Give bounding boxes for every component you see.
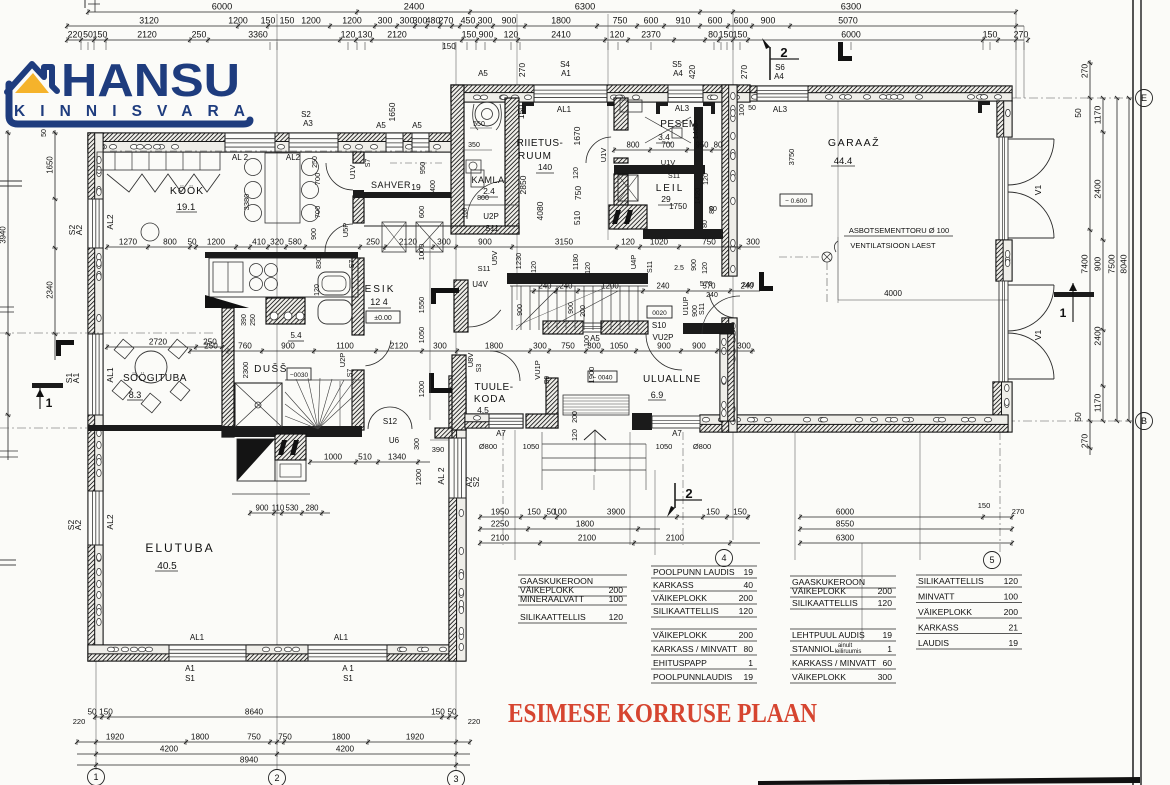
svg-text:3380: 3380 — [242, 194, 251, 211]
svg-text:6300: 6300 — [841, 2, 861, 12]
svg-text:280: 280 — [305, 504, 319, 513]
svg-text:240: 240 — [742, 280, 755, 289]
svg-text:270: 270 — [1012, 507, 1025, 516]
svg-text:120: 120 — [703, 173, 710, 185]
svg-text:VÄIKEPLOKK: VÄIKEPLOKK — [792, 672, 846, 682]
svg-text:SILIKAATTELLIS: SILIKAATTELLIS — [520, 612, 586, 622]
svg-text:510: 510 — [572, 211, 582, 225]
svg-text:S3: S3 — [476, 364, 483, 373]
svg-text:250: 250 — [250, 314, 257, 326]
svg-text:50: 50 — [41, 129, 48, 137]
svg-text:STANNIOL: STANNIOL — [792, 644, 835, 654]
svg-text:120: 120 — [531, 261, 538, 273]
svg-text:1000: 1000 — [324, 453, 343, 462]
svg-text:50: 50 — [187, 238, 197, 247]
svg-text:S2: S2 — [301, 110, 311, 119]
svg-text:600: 600 — [644, 16, 659, 26]
svg-text:250: 250 — [366, 238, 380, 247]
svg-text:120: 120 — [621, 238, 635, 247]
svg-text:2100: 2100 — [666, 534, 685, 543]
svg-text:6.9: 6.9 — [651, 390, 664, 400]
svg-text:300: 300 — [414, 438, 421, 450]
svg-text:A3: A3 — [303, 119, 313, 128]
svg-text:A2: A2 — [74, 225, 84, 236]
svg-text:2370: 2370 — [641, 30, 661, 40]
svg-text:750: 750 — [702, 238, 716, 247]
svg-text:Ø800: Ø800 — [479, 442, 497, 451]
svg-text:1200: 1200 — [414, 469, 423, 486]
svg-text:3940: 3940 — [0, 226, 8, 244]
svg-text:1340: 1340 — [388, 453, 407, 462]
svg-text:19: 19 — [882, 630, 892, 640]
svg-text:Ø800: Ø800 — [693, 442, 711, 451]
svg-text:AL1: AL1 — [334, 633, 349, 642]
svg-text:2400: 2400 — [1093, 179, 1103, 198]
svg-text:150: 150 — [733, 508, 747, 517]
svg-text:420: 420 — [687, 65, 697, 79]
svg-text:3: 3 — [453, 774, 458, 784]
svg-text:A2: A2 — [73, 520, 83, 531]
svg-text:S11: S11 — [478, 264, 491, 273]
svg-text:1550: 1550 — [417, 297, 426, 314]
svg-text:1200: 1200 — [207, 238, 226, 247]
svg-text:VÄIKEPLOKK: VÄIKEPLOKK — [653, 630, 707, 640]
svg-text:950: 950 — [695, 141, 709, 150]
svg-text:S7: S7 — [347, 369, 354, 378]
svg-text:U8V: U8V — [466, 353, 475, 368]
svg-text:150: 150 — [99, 708, 113, 717]
svg-text:U1V: U1V — [661, 158, 676, 167]
svg-text:900: 900 — [255, 504, 269, 513]
svg-text:1: 1 — [887, 644, 892, 654]
svg-text:1050: 1050 — [656, 442, 673, 451]
svg-text:120: 120 — [1004, 576, 1019, 586]
svg-text:80: 80 — [743, 644, 753, 654]
svg-text:900: 900 — [1093, 257, 1103, 272]
svg-text:1800: 1800 — [485, 342, 504, 351]
svg-text:120: 120 — [341, 30, 356, 40]
svg-text:U4P: U4P — [629, 255, 638, 270]
svg-text:44.4: 44.4 — [834, 156, 853, 167]
svg-text:3150: 3150 — [555, 238, 574, 247]
svg-text:120: 120 — [314, 284, 321, 296]
svg-text:40: 40 — [743, 580, 753, 590]
svg-text:600: 600 — [417, 206, 426, 219]
svg-text:240: 240 — [559, 282, 573, 291]
svg-text:VÄIKEPLOKK: VÄIKEPLOKK — [653, 593, 707, 603]
svg-text:4200: 4200 — [336, 745, 355, 754]
svg-text:2300: 2300 — [241, 362, 250, 379]
svg-text:220: 220 — [73, 717, 86, 726]
svg-text:950: 950 — [418, 162, 427, 175]
svg-text:900: 900 — [311, 228, 318, 240]
svg-text:VÄIKEPLOKK: VÄIKEPLOKK — [918, 607, 972, 617]
svg-text:910: 910 — [676, 16, 691, 26]
svg-text:U2P: U2P — [483, 212, 499, 221]
svg-text:1270: 1270 — [119, 238, 138, 247]
svg-text:700: 700 — [661, 141, 675, 150]
svg-text:LEIL: LEIL — [656, 183, 685, 194]
svg-text:A1: A1 — [71, 373, 81, 384]
svg-text:1670: 1670 — [572, 126, 582, 145]
svg-text:1180: 1180 — [571, 254, 580, 270]
svg-text:S7: S7 — [349, 260, 356, 269]
svg-text:1050: 1050 — [610, 342, 629, 351]
svg-text:1800: 1800 — [576, 520, 595, 529]
svg-text:4080: 4080 — [535, 201, 545, 220]
svg-text:19: 19 — [743, 567, 753, 577]
svg-text:570: 570 — [700, 279, 713, 288]
svg-text:4200: 4200 — [160, 745, 179, 754]
svg-text:V1: V1 — [1033, 185, 1043, 196]
svg-text:A1: A1 — [561, 69, 571, 78]
svg-text:KÖÖK: KÖÖK — [170, 185, 204, 197]
svg-text:1: 1 — [748, 658, 753, 668]
svg-text:ESIMESE KORRUSE PLAAN: ESIMESE KORRUSE PLAAN — [508, 698, 817, 728]
svg-text:LEHTPUUL AUDIS: LEHTPUUL AUDIS — [792, 630, 865, 640]
svg-text:A7: A7 — [672, 429, 682, 438]
svg-text:1200: 1200 — [417, 381, 426, 398]
svg-text:200: 200 — [878, 586, 893, 596]
svg-text:1750: 1750 — [669, 202, 687, 211]
svg-text:300: 300 — [378, 16, 393, 26]
svg-text:2: 2 — [274, 773, 279, 783]
svg-text:1050: 1050 — [523, 442, 540, 451]
svg-text:S5: S5 — [672, 60, 682, 69]
svg-text:1100: 1100 — [336, 342, 354, 351]
svg-text:50: 50 — [87, 708, 97, 717]
svg-text:U5P: U5P — [341, 223, 350, 238]
svg-text:390: 390 — [241, 314, 248, 326]
svg-text:900: 900 — [281, 342, 295, 351]
svg-text:4000: 4000 — [884, 289, 902, 298]
svg-text:150: 150 — [93, 30, 108, 40]
svg-text:240: 240 — [706, 292, 718, 299]
svg-text:S1: S1 — [185, 674, 195, 683]
svg-text:ELUTUBA: ELUTUBA — [145, 541, 214, 555]
svg-text:S1: S1 — [343, 674, 353, 683]
svg-text:4: 4 — [721, 553, 726, 563]
svg-text:leiliruumis: leiliruumis — [835, 649, 862, 655]
svg-text:80: 80 — [714, 141, 723, 150]
svg-text:300: 300 — [433, 342, 447, 351]
svg-text:750: 750 — [561, 342, 575, 351]
svg-text:S12: S12 — [383, 417, 398, 426]
svg-text:ULUALLNE: ULUALLNE — [643, 374, 701, 385]
svg-text:60: 60 — [882, 658, 892, 668]
svg-text:U4V: U4V — [472, 280, 488, 289]
svg-text:120: 120 — [878, 598, 893, 608]
svg-text:U1V: U1V — [348, 165, 357, 180]
svg-text:A4: A4 — [673, 69, 683, 78]
svg-text:1420: 1420 — [693, 188, 702, 205]
svg-text:390: 390 — [432, 445, 445, 454]
svg-text:A1: A1 — [185, 664, 195, 673]
svg-text:800: 800 — [626, 141, 640, 150]
svg-text:600: 600 — [708, 16, 723, 26]
svg-text:SÖÖGITUBA: SÖÖGITUBA — [123, 372, 187, 384]
svg-text:800: 800 — [163, 238, 177, 247]
svg-text:S2: S2 — [471, 477, 481, 488]
svg-text:MINERAALVATT: MINERAALVATT — [520, 594, 585, 604]
svg-text:750: 750 — [573, 186, 583, 200]
svg-text:POOLPUNN LAUDIS: POOLPUNN LAUDIS — [653, 567, 735, 577]
svg-text:1920: 1920 — [106, 733, 125, 742]
svg-text:900: 900 — [761, 16, 776, 26]
svg-text:1650: 1650 — [46, 156, 55, 174]
svg-text:KARKASS / MINVATT: KARKASS / MINVATT — [653, 644, 738, 654]
svg-text:80: 80 — [709, 206, 716, 214]
svg-text:200: 200 — [1004, 607, 1019, 617]
svg-text:300: 300 — [478, 16, 493, 26]
svg-text:AL3: AL3 — [773, 105, 788, 114]
svg-text:S6: S6 — [775, 63, 785, 72]
svg-text:1650: 1650 — [387, 102, 397, 121]
svg-text:50: 50 — [1073, 108, 1083, 118]
svg-text:80: 80 — [702, 220, 709, 228]
svg-text:1230: 1230 — [514, 253, 523, 270]
svg-text:6300: 6300 — [836, 534, 855, 543]
svg-text:U2P: U2P — [338, 353, 347, 368]
svg-text:S11: S11 — [647, 261, 654, 273]
svg-text:240: 240 — [656, 282, 670, 291]
svg-text:AL1: AL1 — [190, 633, 205, 642]
svg-text:510: 510 — [358, 453, 372, 462]
svg-text:2850: 2850 — [518, 175, 528, 194]
svg-text:150: 150 — [442, 42, 456, 51]
svg-text:RUUM: RUUM — [518, 151, 552, 162]
svg-text:21: 21 — [1008, 623, 1018, 633]
svg-text:6000: 6000 — [841, 30, 861, 40]
svg-text:LAUDIS: LAUDIS — [918, 638, 949, 648]
svg-text:700: 700 — [313, 173, 322, 186]
svg-text:220: 220 — [468, 717, 481, 726]
svg-text:120: 120 — [573, 167, 580, 179]
svg-text:150: 150 — [527, 508, 541, 517]
svg-text:KARKASS: KARKASS — [918, 623, 959, 633]
svg-text:1950: 1950 — [491, 508, 510, 517]
svg-text:AL 2: AL 2 — [436, 467, 446, 484]
svg-text:VU1P: VU1P — [533, 360, 542, 380]
svg-text:ASBOTSEMENTTORU Ø 100: ASBOTSEMENTTORU Ø 100 — [849, 226, 949, 235]
svg-text:150: 150 — [978, 501, 991, 510]
svg-text:270: 270 — [739, 65, 749, 79]
svg-text:900: 900 — [657, 342, 671, 351]
svg-text:140: 140 — [538, 162, 552, 172]
svg-text:U5V: U5V — [490, 251, 499, 266]
svg-text:VÄIKEPLOKK: VÄIKEPLOKK — [792, 586, 846, 596]
svg-text:900: 900 — [517, 304, 524, 316]
svg-text:100: 100 — [1004, 592, 1019, 602]
svg-text:300: 300 — [533, 342, 547, 351]
svg-text:700: 700 — [313, 206, 322, 219]
svg-text:12 4: 12 4 — [370, 297, 388, 307]
svg-text:8040: 8040 — [1119, 254, 1129, 273]
svg-text:SILIKAATTELLIS: SILIKAATTELLIS — [653, 606, 719, 616]
svg-text:120: 120 — [572, 429, 579, 441]
svg-text:VENTILATSIOON LAEST: VENTILATSIOON LAEST — [850, 241, 936, 250]
svg-text:1200: 1200 — [301, 16, 321, 26]
svg-text:RIIETUS-: RIIETUS- — [517, 138, 564, 149]
svg-text:1000: 1000 — [417, 244, 426, 261]
svg-text:100: 100 — [609, 594, 624, 604]
svg-text:A4: A4 — [774, 72, 784, 81]
svg-text:3750: 3750 — [787, 149, 796, 166]
svg-text:2410: 2410 — [551, 30, 571, 40]
svg-text:1200: 1200 — [601, 282, 619, 291]
svg-text:760: 760 — [238, 342, 252, 351]
svg-text:6000: 6000 — [212, 2, 232, 12]
svg-text:SAHVER: SAHVER — [371, 180, 411, 190]
svg-text:200: 200 — [739, 593, 754, 603]
svg-text:AL2: AL2 — [105, 214, 115, 229]
svg-text:1800: 1800 — [332, 733, 351, 742]
svg-text:S11: S11 — [485, 224, 499, 233]
svg-text:1: 1 — [1060, 306, 1067, 320]
svg-text:1170: 1170 — [1093, 394, 1103, 413]
svg-text:300: 300 — [746, 238, 760, 247]
svg-text:E: E — [1141, 93, 1147, 103]
svg-text:50: 50 — [1073, 412, 1083, 422]
svg-text:300: 300 — [437, 238, 451, 247]
svg-text:220: 220 — [68, 30, 83, 40]
svg-text:120: 120 — [702, 262, 709, 274]
svg-text:B: B — [1141, 416, 1147, 426]
svg-text:U6: U6 — [389, 436, 400, 445]
svg-text:250: 250 — [312, 156, 319, 168]
svg-text:1800: 1800 — [551, 16, 571, 26]
svg-text:AL2: AL2 — [105, 514, 115, 529]
svg-text:KARKASS / MINVATT: KARKASS / MINVATT — [792, 658, 877, 668]
svg-text:S9: S9 — [544, 376, 551, 385]
svg-text:EHITUSPAPP: EHITUSPAPP — [653, 658, 707, 668]
svg-text:150: 150 — [516, 105, 526, 119]
svg-text:8940: 8940 — [240, 756, 259, 765]
svg-text:300: 300 — [587, 342, 601, 351]
svg-text:4,5: 4,5 — [477, 405, 489, 415]
svg-text:800: 800 — [477, 195, 489, 202]
svg-text:900: 900 — [568, 302, 575, 314]
svg-text:150: 150 — [706, 508, 720, 517]
svg-text:200: 200 — [572, 411, 579, 423]
svg-text:V1: V1 — [1033, 330, 1043, 341]
svg-text:AL2: AL2 — [286, 153, 301, 162]
svg-text:MINVATT: MINVATT — [918, 592, 955, 602]
svg-text:900: 900 — [479, 30, 494, 40]
svg-text:AL3: AL3 — [675, 104, 690, 113]
svg-text:2120: 2120 — [399, 238, 418, 247]
svg-text:200: 200 — [580, 305, 587, 317]
svg-text:HANSU: HANSU — [61, 54, 240, 106]
svg-text:2250: 2250 — [491, 520, 510, 529]
svg-text:S11: S11 — [668, 173, 680, 180]
svg-text:SILIKAATTELLIS: SILIKAATTELLIS — [792, 598, 858, 608]
svg-text:120: 120 — [585, 262, 592, 274]
svg-text:120: 120 — [739, 606, 754, 616]
svg-text:− 0.600: − 0.600 — [785, 198, 807, 205]
svg-text:19: 19 — [743, 672, 753, 682]
svg-text:1920: 1920 — [406, 733, 425, 742]
svg-text:580: 580 — [288, 238, 302, 247]
svg-text:U1V: U1V — [599, 148, 608, 163]
svg-text:450: 450 — [461, 16, 476, 26]
svg-text:530: 530 — [285, 504, 299, 513]
svg-text:300: 300 — [878, 672, 893, 682]
svg-text:2720: 2720 — [149, 338, 168, 347]
svg-text:±0.00: ±0.00 — [374, 315, 392, 322]
svg-text:KAMLA: KAMLA — [471, 175, 504, 185]
svg-text:5070: 5070 — [838, 16, 858, 26]
svg-text:1480: 1480 — [691, 123, 700, 140]
svg-text:130: 130 — [358, 30, 373, 40]
svg-text:KARKASS: KARKASS — [653, 580, 694, 590]
svg-text:AL1: AL1 — [557, 105, 572, 114]
svg-text:80: 80 — [708, 30, 718, 40]
svg-text:400: 400 — [430, 180, 437, 192]
svg-text:2100: 2100 — [578, 534, 597, 543]
svg-text:A5: A5 — [376, 121, 386, 130]
svg-text:8550: 8550 — [836, 520, 855, 529]
svg-text:350: 350 — [468, 142, 480, 149]
svg-text:S10: S10 — [652, 321, 667, 330]
svg-text:A5: A5 — [412, 121, 422, 130]
svg-text:120: 120 — [609, 612, 624, 622]
svg-text:2100: 2100 — [491, 534, 510, 543]
svg-text:DUŠŠ: DUŠŠ — [254, 362, 288, 375]
svg-text:VU2P: VU2P — [653, 333, 674, 342]
svg-text:1020: 1020 — [650, 238, 669, 247]
svg-text:8640: 8640 — [245, 708, 264, 717]
svg-text:150: 150 — [280, 16, 295, 26]
svg-text:900: 900 — [692, 342, 706, 351]
svg-text:270: 270 — [517, 63, 527, 77]
svg-text:1800: 1800 — [191, 733, 210, 742]
svg-text:2400: 2400 — [1093, 326, 1103, 345]
svg-text:40.5: 40.5 — [157, 561, 177, 572]
svg-text:GARAAŽ: GARAAŽ — [828, 136, 880, 149]
svg-text:5: 5 — [989, 555, 994, 565]
svg-text:3120: 3120 — [139, 16, 159, 26]
svg-text:410: 410 — [252, 238, 266, 247]
svg-text:7500: 7500 — [1107, 254, 1117, 273]
svg-text:TUULE-: TUULE- — [474, 382, 513, 393]
svg-text:AL1: AL1 — [105, 367, 115, 382]
svg-text:S11: S11 — [699, 303, 706, 315]
svg-text:SILIKAATTELLIS: SILIKAATTELLIS — [918, 576, 984, 586]
svg-text:ESIK: ESIK — [365, 284, 396, 295]
svg-text:6300: 6300 — [575, 2, 595, 12]
svg-text:KODA: KODA — [474, 394, 506, 405]
svg-text:2120: 2120 — [137, 30, 157, 40]
svg-text:100: 100 — [739, 104, 746, 116]
svg-text:2.5: 2.5 — [674, 265, 684, 272]
svg-text:200: 200 — [739, 630, 754, 640]
svg-text:8.3: 8.3 — [129, 390, 142, 400]
svg-text:320: 320 — [270, 238, 284, 247]
svg-text:−0030: −0030 — [290, 372, 309, 379]
svg-text:900: 900 — [502, 16, 517, 26]
svg-text:50: 50 — [83, 30, 93, 40]
svg-text:S4: S4 — [560, 60, 570, 69]
svg-text:POOLPUNNLAUDIS: POOLPUNNLAUDIS — [653, 672, 733, 682]
svg-text:S7: S7 — [365, 159, 372, 168]
svg-text:3900: 3900 — [607, 508, 626, 517]
svg-text:900: 900 — [692, 305, 699, 317]
svg-text:U1UP: U1UP — [683, 296, 690, 315]
svg-text:900: 900 — [478, 238, 492, 247]
svg-text:19: 19 — [411, 182, 421, 192]
svg-text:0020: 0020 — [652, 310, 667, 317]
